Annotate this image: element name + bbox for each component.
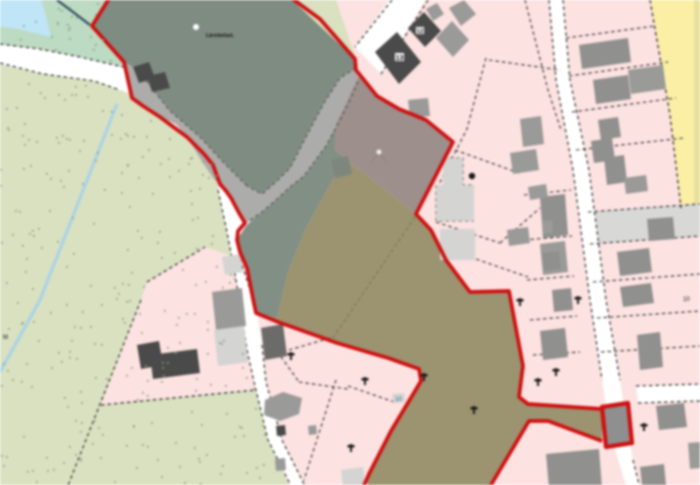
svg-text:Lärmbelast.: Lärmbelast. xyxy=(206,33,235,39)
svg-text:10: 10 xyxy=(683,297,690,303)
svg-text:12: 12 xyxy=(417,29,424,35)
svg-text:M: M xyxy=(3,335,8,341)
svg-text:10: 10 xyxy=(395,397,402,403)
svg-text:13: 13 xyxy=(396,55,404,62)
